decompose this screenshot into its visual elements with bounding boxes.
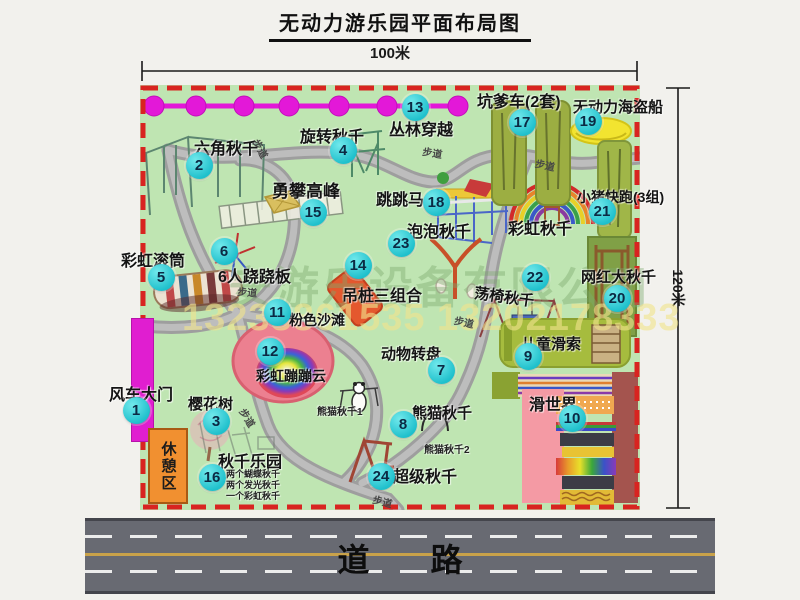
width-dimension-line xyxy=(140,60,640,82)
watermark-phone: 13233861535 13202178333 xyxy=(182,297,681,340)
road: 道 路 xyxy=(85,518,715,594)
cherry-tree-shape xyxy=(190,410,230,461)
jungle-crossing-line xyxy=(144,96,468,116)
page-title: 无动力游乐园平面布局图 xyxy=(269,7,531,42)
pig-run-shape xyxy=(598,141,631,238)
windmill-gate-bar xyxy=(131,318,154,442)
climbing-peak-shape xyxy=(219,191,343,228)
road-label: 道 路 xyxy=(85,535,715,581)
rest-area-label: 休憩区 xyxy=(158,441,179,492)
park-plan-page: 无动力游乐园平面布局图 100米 120米 xyxy=(0,0,800,600)
rest-area-box: 休憩区 xyxy=(148,428,188,504)
slide-world-shapes xyxy=(492,372,638,505)
park-map: 安游乐设备有限公司 13233861535 13202178333 风车大门1六… xyxy=(140,85,640,510)
